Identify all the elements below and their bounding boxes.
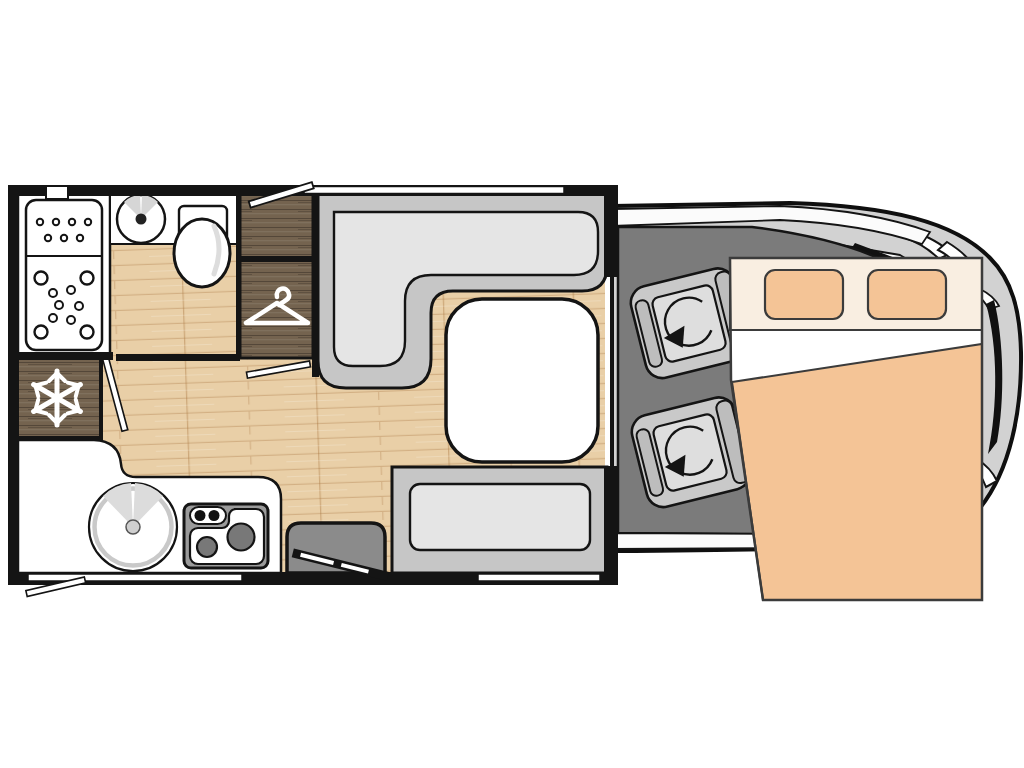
stove-hob	[184, 504, 268, 568]
drop-down-bed	[730, 258, 982, 600]
hob-knob-icon	[209, 510, 220, 521]
wall-wardrobe-lounge	[312, 185, 319, 377]
kitchen-sink	[89, 483, 177, 571]
cab-threshold-line	[610, 277, 614, 466]
wall-cab-bottom	[604, 466, 618, 585]
kitchen-bottom-window	[28, 574, 242, 581]
wall-cab-top	[604, 185, 618, 277]
sink-drain-icon	[126, 520, 140, 534]
floor-plan-canvas	[0, 0, 1024, 768]
refrigerator	[13, 356, 101, 438]
wall-left	[8, 185, 19, 585]
habitation-area	[13, 190, 607, 573]
toilet	[174, 206, 230, 287]
wall-vanity-wardrobe	[236, 190, 241, 355]
pedestal-table	[446, 299, 598, 462]
bench-bottom-window	[478, 574, 600, 581]
bed-pillow	[868, 270, 946, 319]
burner-large-icon	[228, 524, 255, 551]
hob-knob-icon	[195, 510, 206, 521]
motorhome-floor-plan	[0, 0, 1024, 768]
shower-tray	[18, 192, 110, 358]
side-bench	[392, 467, 607, 573]
bed-duvet	[732, 344, 982, 600]
wardrobe	[240, 190, 313, 358]
basin-drain-icon	[136, 214, 147, 225]
bed-pillow	[765, 270, 843, 319]
lounge-top-window	[304, 187, 564, 194]
shower-vent-notch	[46, 186, 68, 199]
burner-small-icon	[197, 537, 217, 557]
wall-bathroom-south	[13, 352, 113, 360]
bathroom-door	[116, 354, 240, 361]
